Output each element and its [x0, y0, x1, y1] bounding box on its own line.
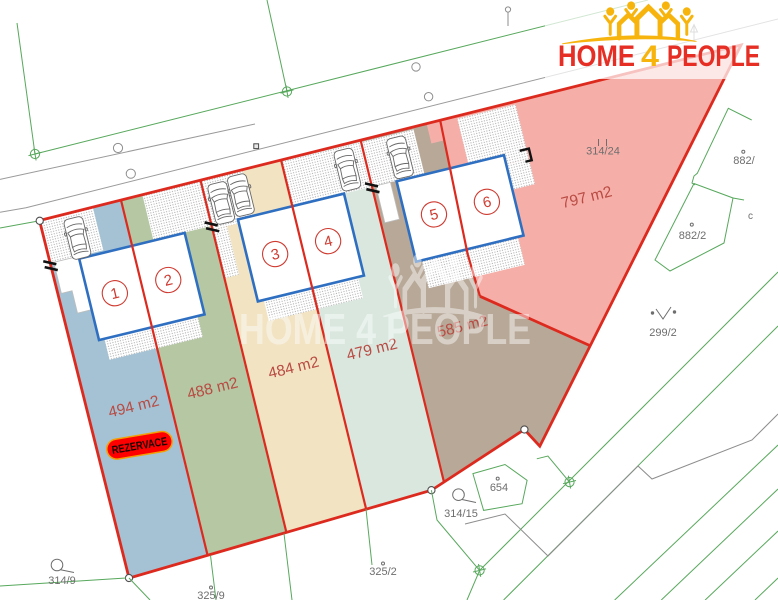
- svg-text:299/2: 299/2: [649, 327, 677, 339]
- svg-text:314/24: 314/24: [586, 146, 620, 158]
- svg-text:882/: 882/: [733, 155, 755, 167]
- svg-text:314/15: 314/15: [444, 508, 478, 520]
- svg-text:4: 4: [641, 40, 659, 73]
- svg-text:325/9: 325/9: [197, 590, 225, 600]
- svg-text:654: 654: [490, 482, 508, 494]
- svg-text:882/2: 882/2: [679, 230, 707, 242]
- svg-text:HOME: HOME: [558, 40, 635, 73]
- svg-text:HOME 4 PEOPLE: HOME 4 PEOPLE: [239, 306, 531, 354]
- svg-text:c: c: [748, 211, 753, 222]
- svg-text:325/2: 325/2: [369, 566, 397, 578]
- svg-text:314/9: 314/9: [48, 575, 76, 587]
- svg-text:PEOPLE: PEOPLE: [667, 40, 760, 73]
